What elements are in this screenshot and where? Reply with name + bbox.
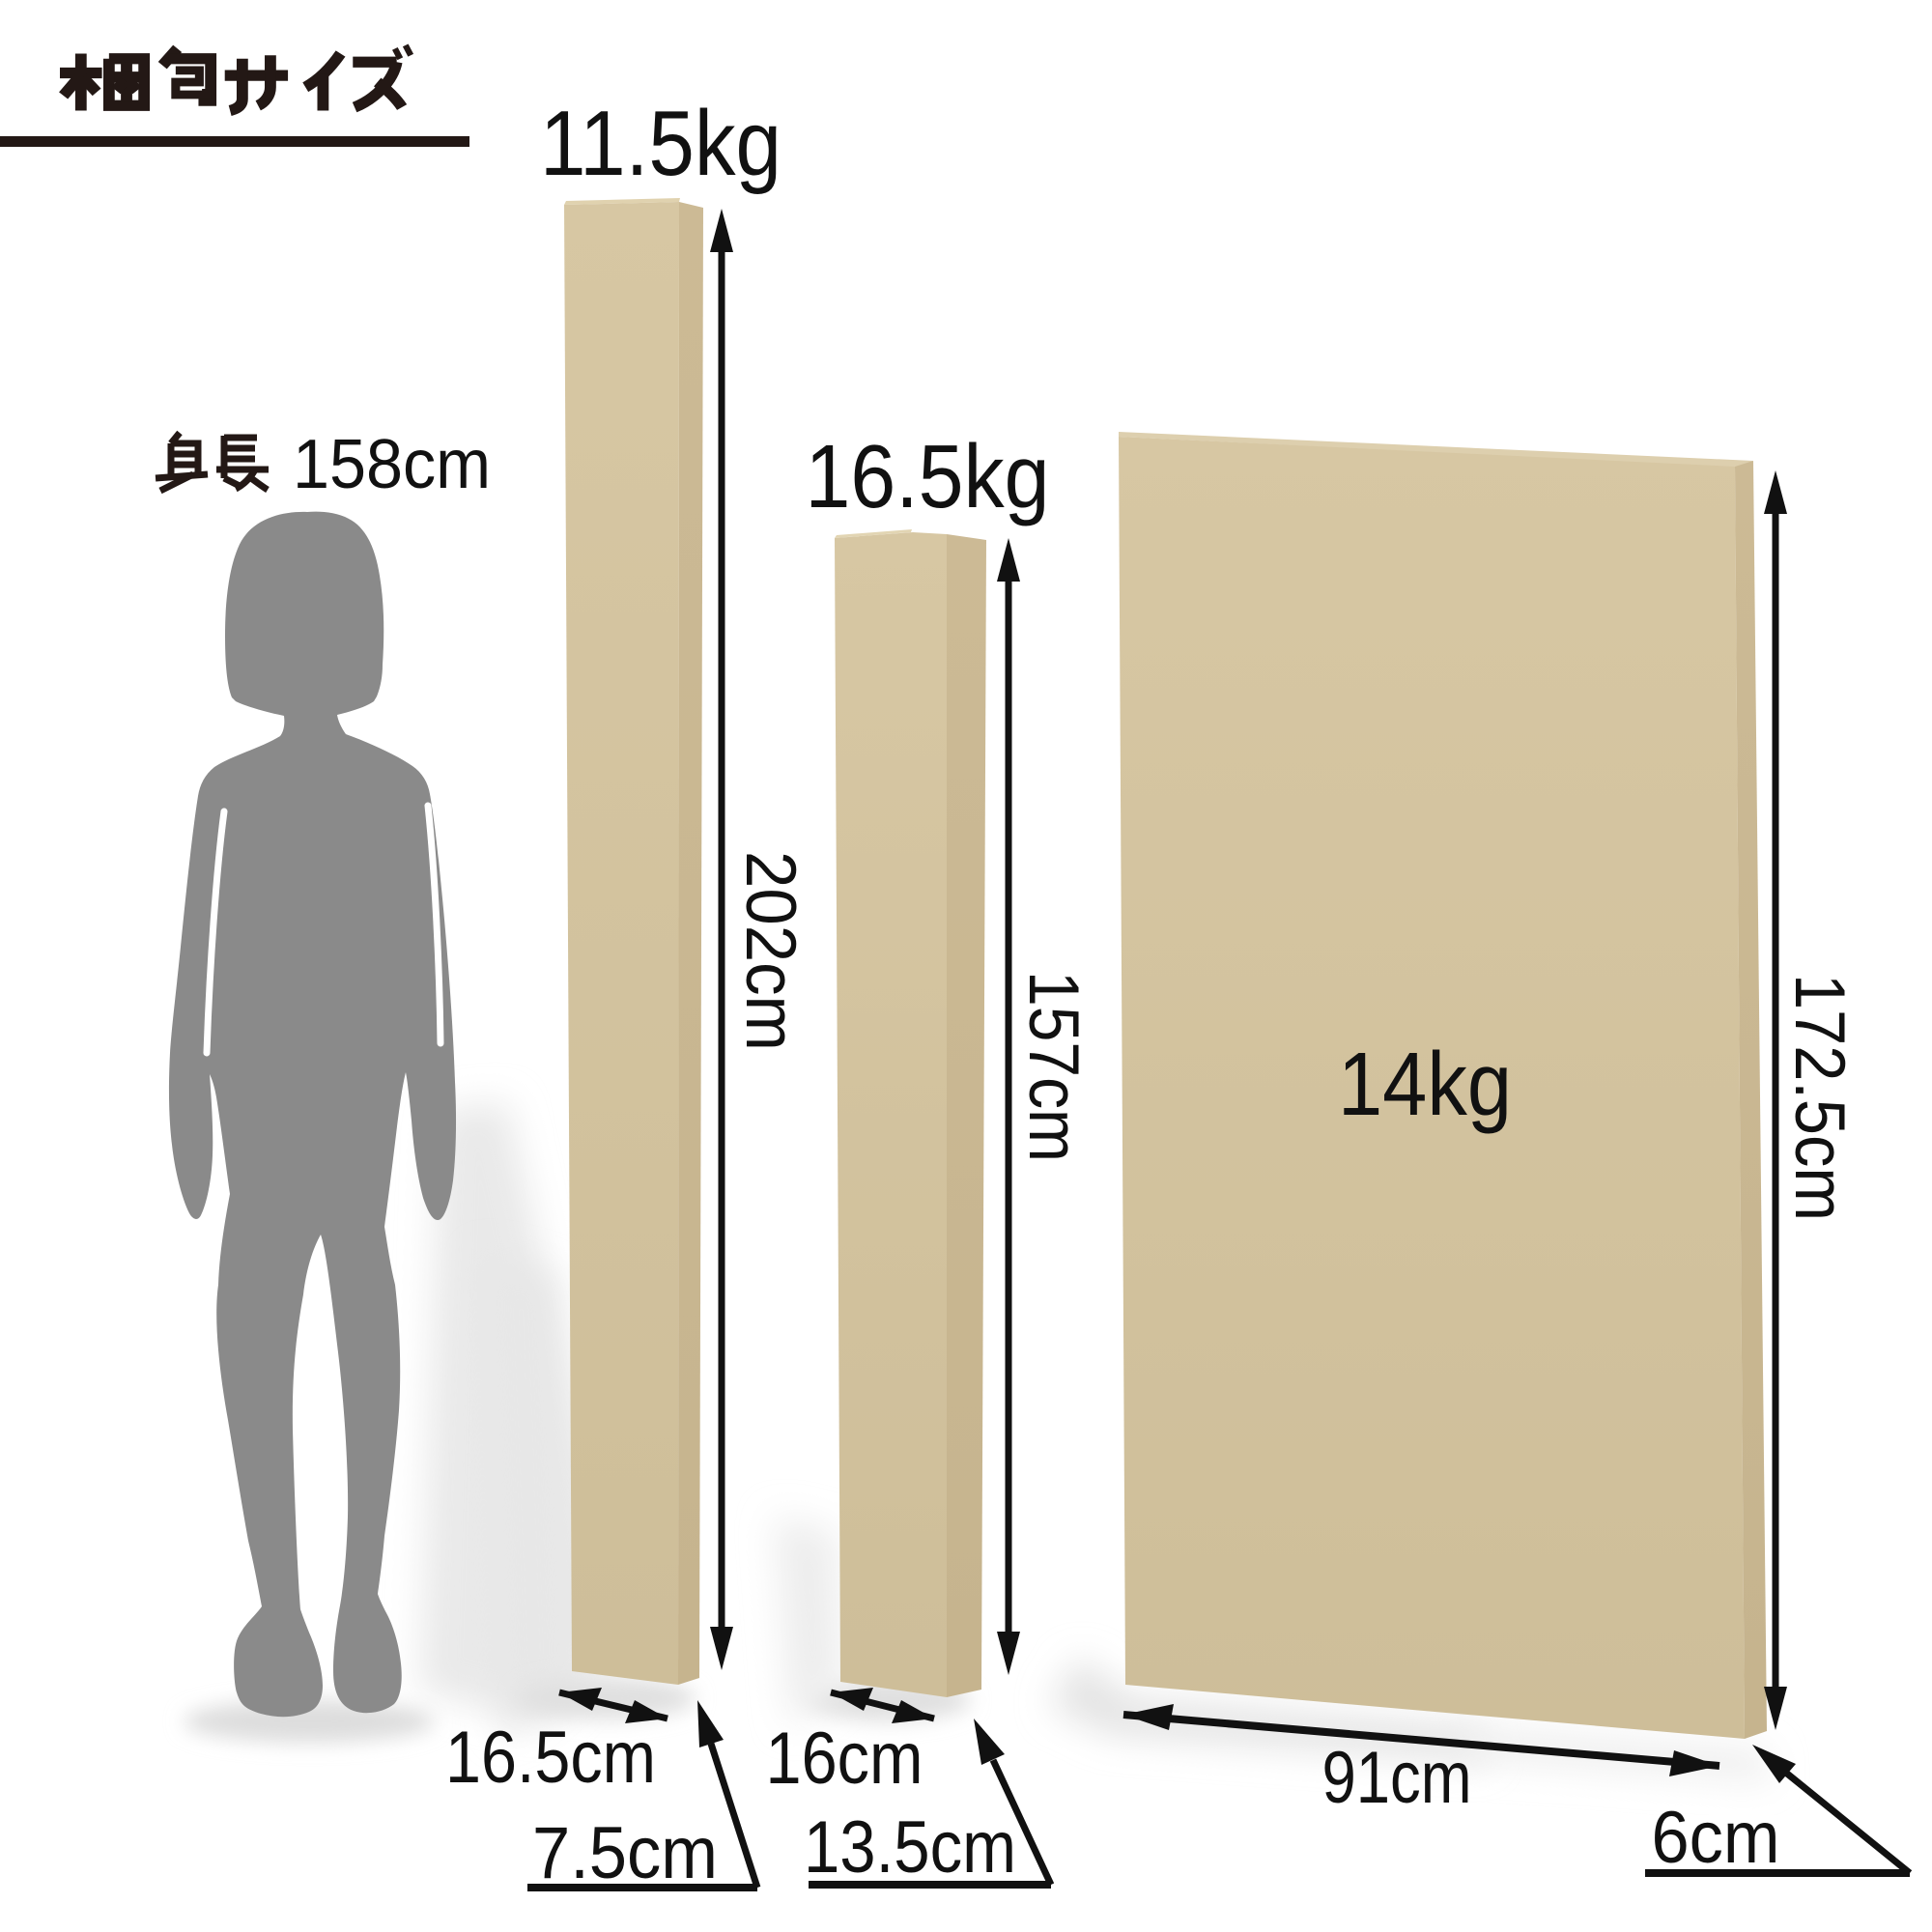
svg-text:157cm: 157cm [1014,971,1093,1162]
svg-text:16cm: 16cm [766,1718,923,1800]
svg-text:11.5kg: 11.5kg [540,92,781,195]
svg-text:16.5kg: 16.5kg [806,426,1050,526]
svg-text:158cm: 158cm [293,426,491,503]
svg-text:172.5cm: 172.5cm [1780,974,1859,1221]
svg-text:202cm: 202cm [731,851,810,1051]
svg-text:6cm: 6cm [1652,1797,1780,1879]
svg-text:7.5cm: 7.5cm [532,1812,718,1894]
svg-text:14kg: 14kg [1338,1034,1512,1134]
svg-text:16.5cm: 16.5cm [445,1717,656,1799]
svg-text:13.5cm: 13.5cm [804,1806,1016,1889]
svg-text:91cm: 91cm [1322,1737,1472,1819]
